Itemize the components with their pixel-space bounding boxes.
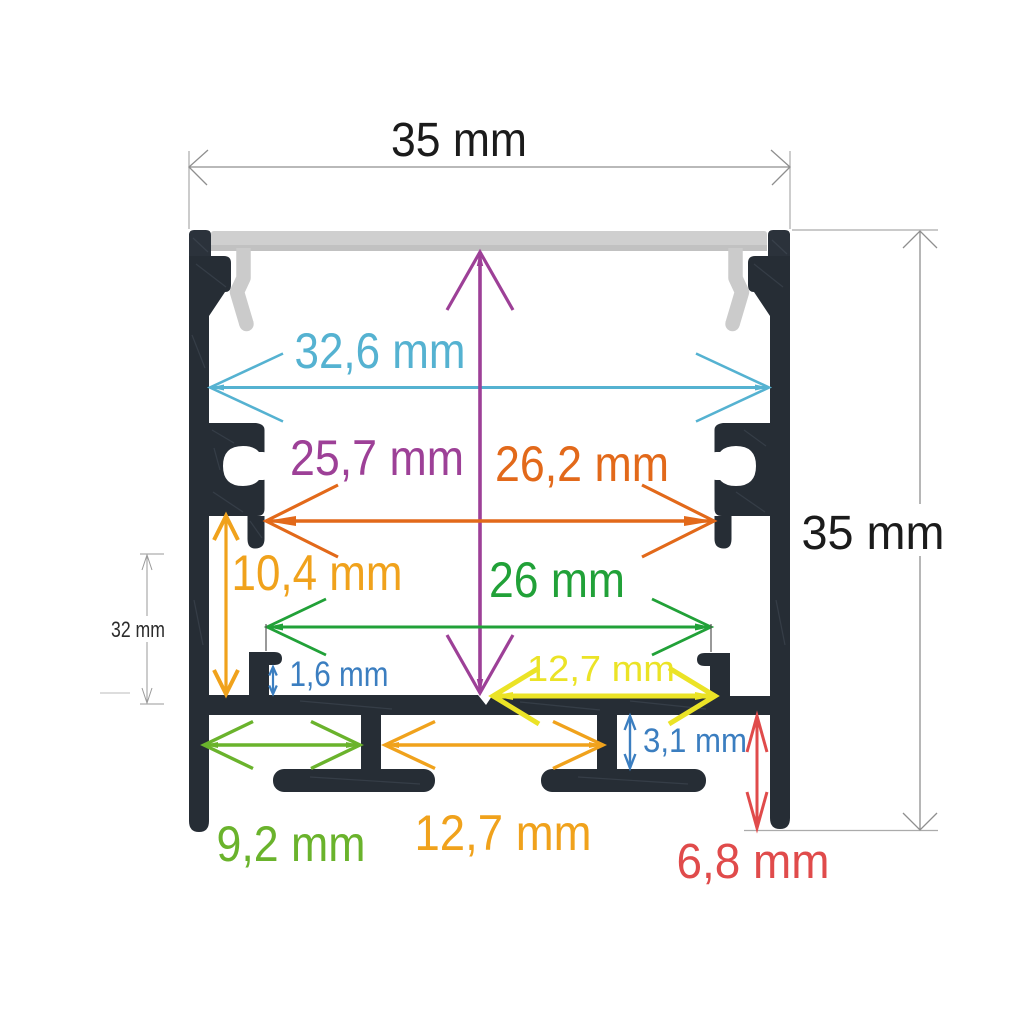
svg-text:32 mm: 32 mm bbox=[111, 617, 165, 642]
svg-text:26,2 mm: 26,2 mm bbox=[495, 436, 669, 492]
svg-text:26 mm: 26 mm bbox=[489, 552, 625, 608]
svg-text:9,2 mm: 9,2 mm bbox=[217, 816, 366, 872]
svg-text:35 mm: 35 mm bbox=[391, 114, 527, 167]
svg-text:6,8 mm: 6,8 mm bbox=[677, 835, 830, 889]
svg-text:32,6 mm: 32,6 mm bbox=[295, 323, 466, 379]
svg-text:3,1 mm: 3,1 mm bbox=[643, 722, 747, 760]
svg-text:35 mm: 35 mm bbox=[802, 507, 945, 560]
svg-text:25,7 mm: 25,7 mm bbox=[290, 430, 464, 486]
svg-text:1,6 mm: 1,6 mm bbox=[290, 655, 389, 694]
svg-text:12,7 mm: 12,7 mm bbox=[415, 805, 592, 861]
svg-text:12,7 mm: 12,7 mm bbox=[527, 648, 675, 689]
svg-text:10,4 mm: 10,4 mm bbox=[232, 545, 403, 601]
